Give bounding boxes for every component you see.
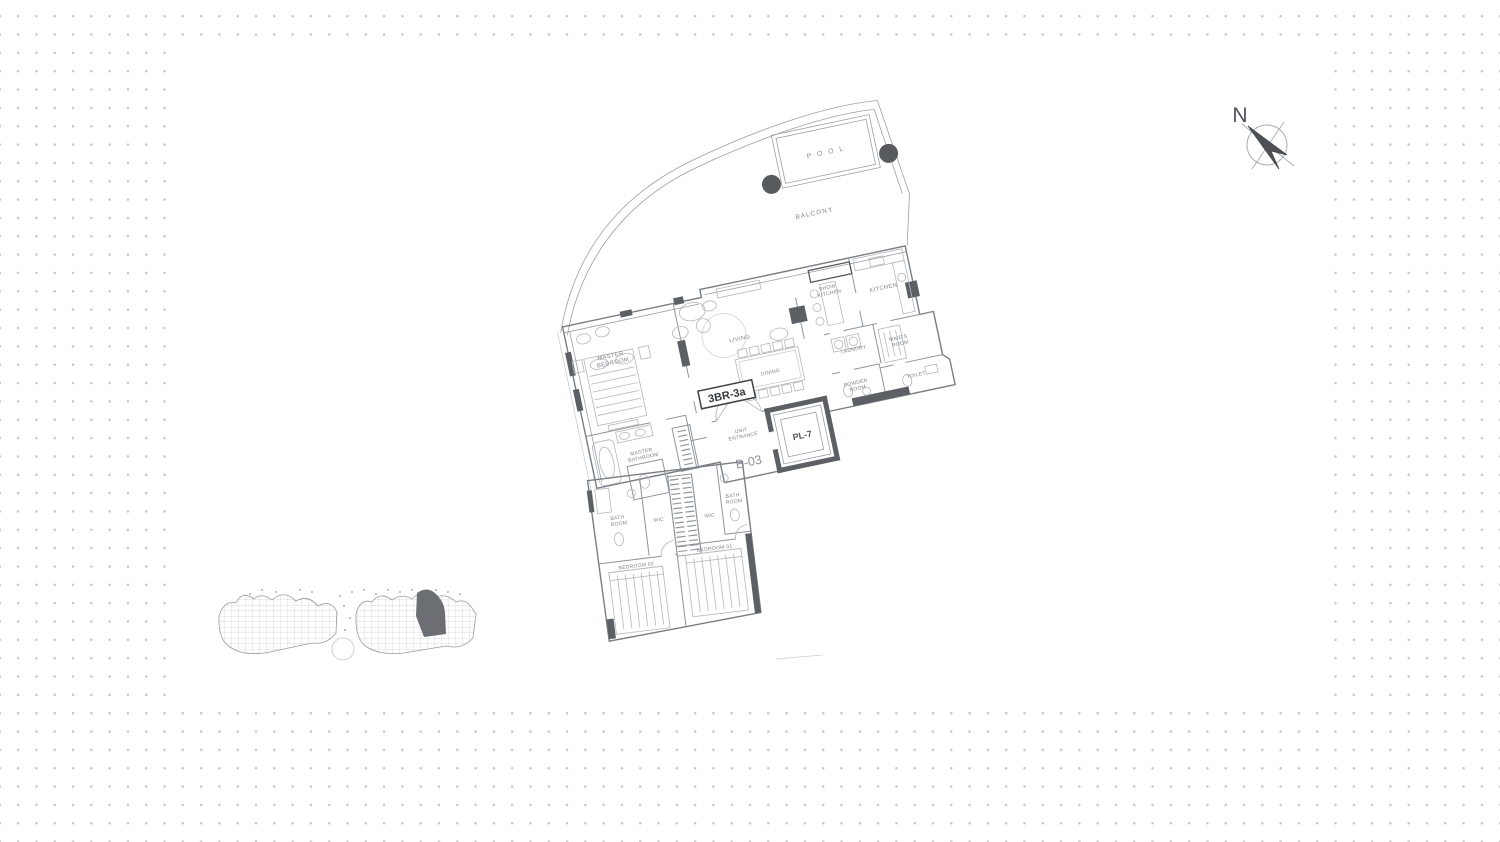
lift-pl7: PL-7 <box>764 396 840 474</box>
powder-room-label: POWDER ROOM <box>843 377 871 394</box>
lift-label: PL-7 <box>792 429 813 443</box>
balcony-inner-curve <box>534 108 906 335</box>
north-compass: N <box>1232 104 1294 169</box>
toilet-label: TOILET <box>906 371 926 381</box>
unit-type-tag: 3BR-3a <box>698 380 756 409</box>
key-plan <box>219 589 476 660</box>
grade-line <box>776 655 823 659</box>
master-bathroom-label: MASTER BATHROOM <box>627 446 660 464</box>
bedroom-02-label: BEDROOM 02 <box>618 561 654 571</box>
planter-icon <box>877 142 900 165</box>
key-plan-left-wing <box>219 595 337 654</box>
bedroom-wing: BATH ROOM WIC WIC BATH ROOM BEDROOM 02 B… <box>586 462 763 642</box>
master-bedroom-label: MASTER BEDROOM <box>595 350 630 370</box>
balcony-right-edge <box>872 98 919 246</box>
dining-label: DINING <box>761 368 781 378</box>
bathroom-right-label: BATH ROOM <box>725 492 743 506</box>
maids-room-label: MAID'S ROOM <box>889 333 911 349</box>
bathroom-left-label: BATH ROOM <box>610 514 628 528</box>
bedroom-01-label: BEDROOM 01 <box>697 543 733 553</box>
floor-plan-canvas: N P O O L BALCONY <box>0 0 1500 842</box>
laundry-label: LAUNDRY <box>840 344 867 355</box>
unit-plan: P O O L BALCONY <box>507 95 996 655</box>
north-label: N <box>1232 104 1247 127</box>
terrace-side-line <box>558 332 592 490</box>
key-plan-court-circle <box>332 638 354 660</box>
wic-1-label: WIC <box>653 517 664 524</box>
bedroom-01-bed <box>685 548 748 616</box>
wic-2-label: WIC <box>704 512 715 519</box>
pool-label: P O O L <box>806 145 846 160</box>
bedroom-02-bed <box>609 566 670 634</box>
master-bedroom-furniture <box>566 318 664 435</box>
compass-north-arrow-icon <box>1248 126 1287 169</box>
planter-icon <box>760 173 783 196</box>
unit-entrance-label: UNIT ENTRANCE <box>727 425 759 443</box>
key-plan-right-wing <box>356 593 476 653</box>
kitchen-label: KITCHEN <box>869 282 898 294</box>
balcony-label: BALCONY <box>795 206 834 221</box>
living-label: LIVING <box>729 334 751 344</box>
floorplan-page: { "canvas": { "paper_color": "#ffffff", … <box>0 0 1500 842</box>
balcony-outer-curve <box>527 99 911 333</box>
